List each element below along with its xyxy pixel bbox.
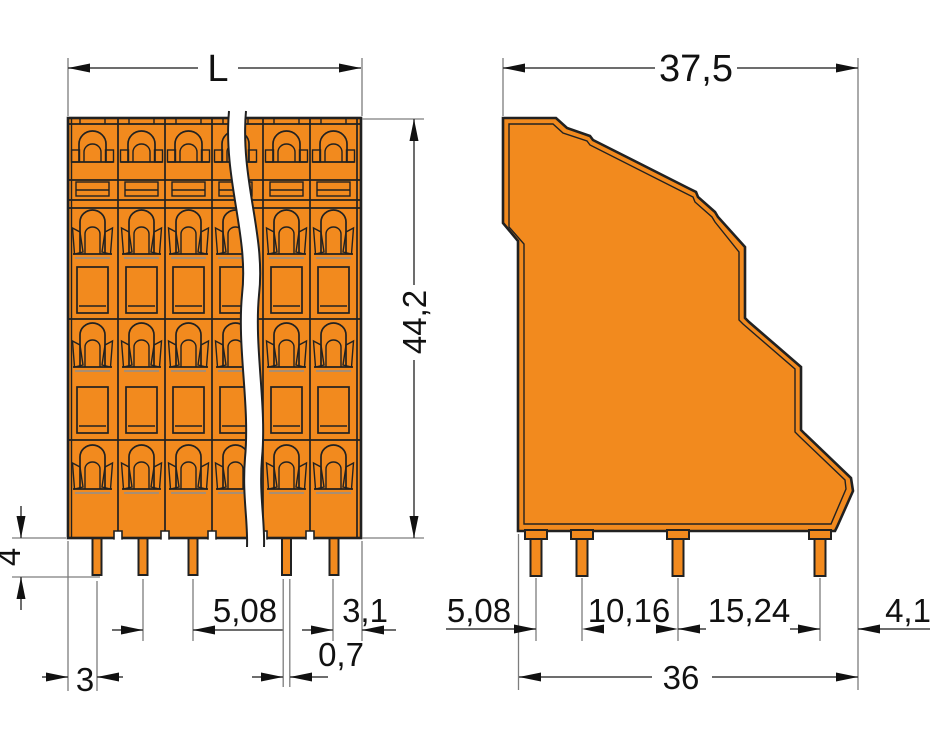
dim-label-width: 37,5 xyxy=(659,48,733,90)
dim-label-bottom-width: 36 xyxy=(663,659,700,696)
front-view xyxy=(68,111,361,575)
side-housing xyxy=(503,118,853,531)
dim-label-side-pin-to-edge: 4,1 xyxy=(885,592,931,629)
dim-label-pin-length: 4 xyxy=(0,548,27,566)
front-solder-pins xyxy=(93,537,339,575)
side-view xyxy=(503,118,853,576)
side-solder-pins xyxy=(525,530,831,576)
dim-label-pin-width: 0,7 xyxy=(318,636,364,673)
technical-drawing: L 44,2 4 3 5,08 0,7 3,1 xyxy=(0,0,945,737)
drawing-canvas: L 44,2 4 3 5,08 0,7 3,1 xyxy=(0,0,945,737)
dim-label-length: L xyxy=(207,48,228,90)
dim-label-pitch: 5,08 xyxy=(213,592,277,629)
dim-label-row2-pitch: 10,16 xyxy=(588,592,671,629)
dim-label-pin-to-edge: 3,1 xyxy=(342,592,388,629)
dim-label-row1-pitch: 5,08 xyxy=(447,592,511,629)
dim-label-row3-pitch: 15,24 xyxy=(708,592,791,629)
dim-label-edge-to-pin: 3 xyxy=(76,661,94,698)
dim-label-height: 44,2 xyxy=(396,290,433,354)
